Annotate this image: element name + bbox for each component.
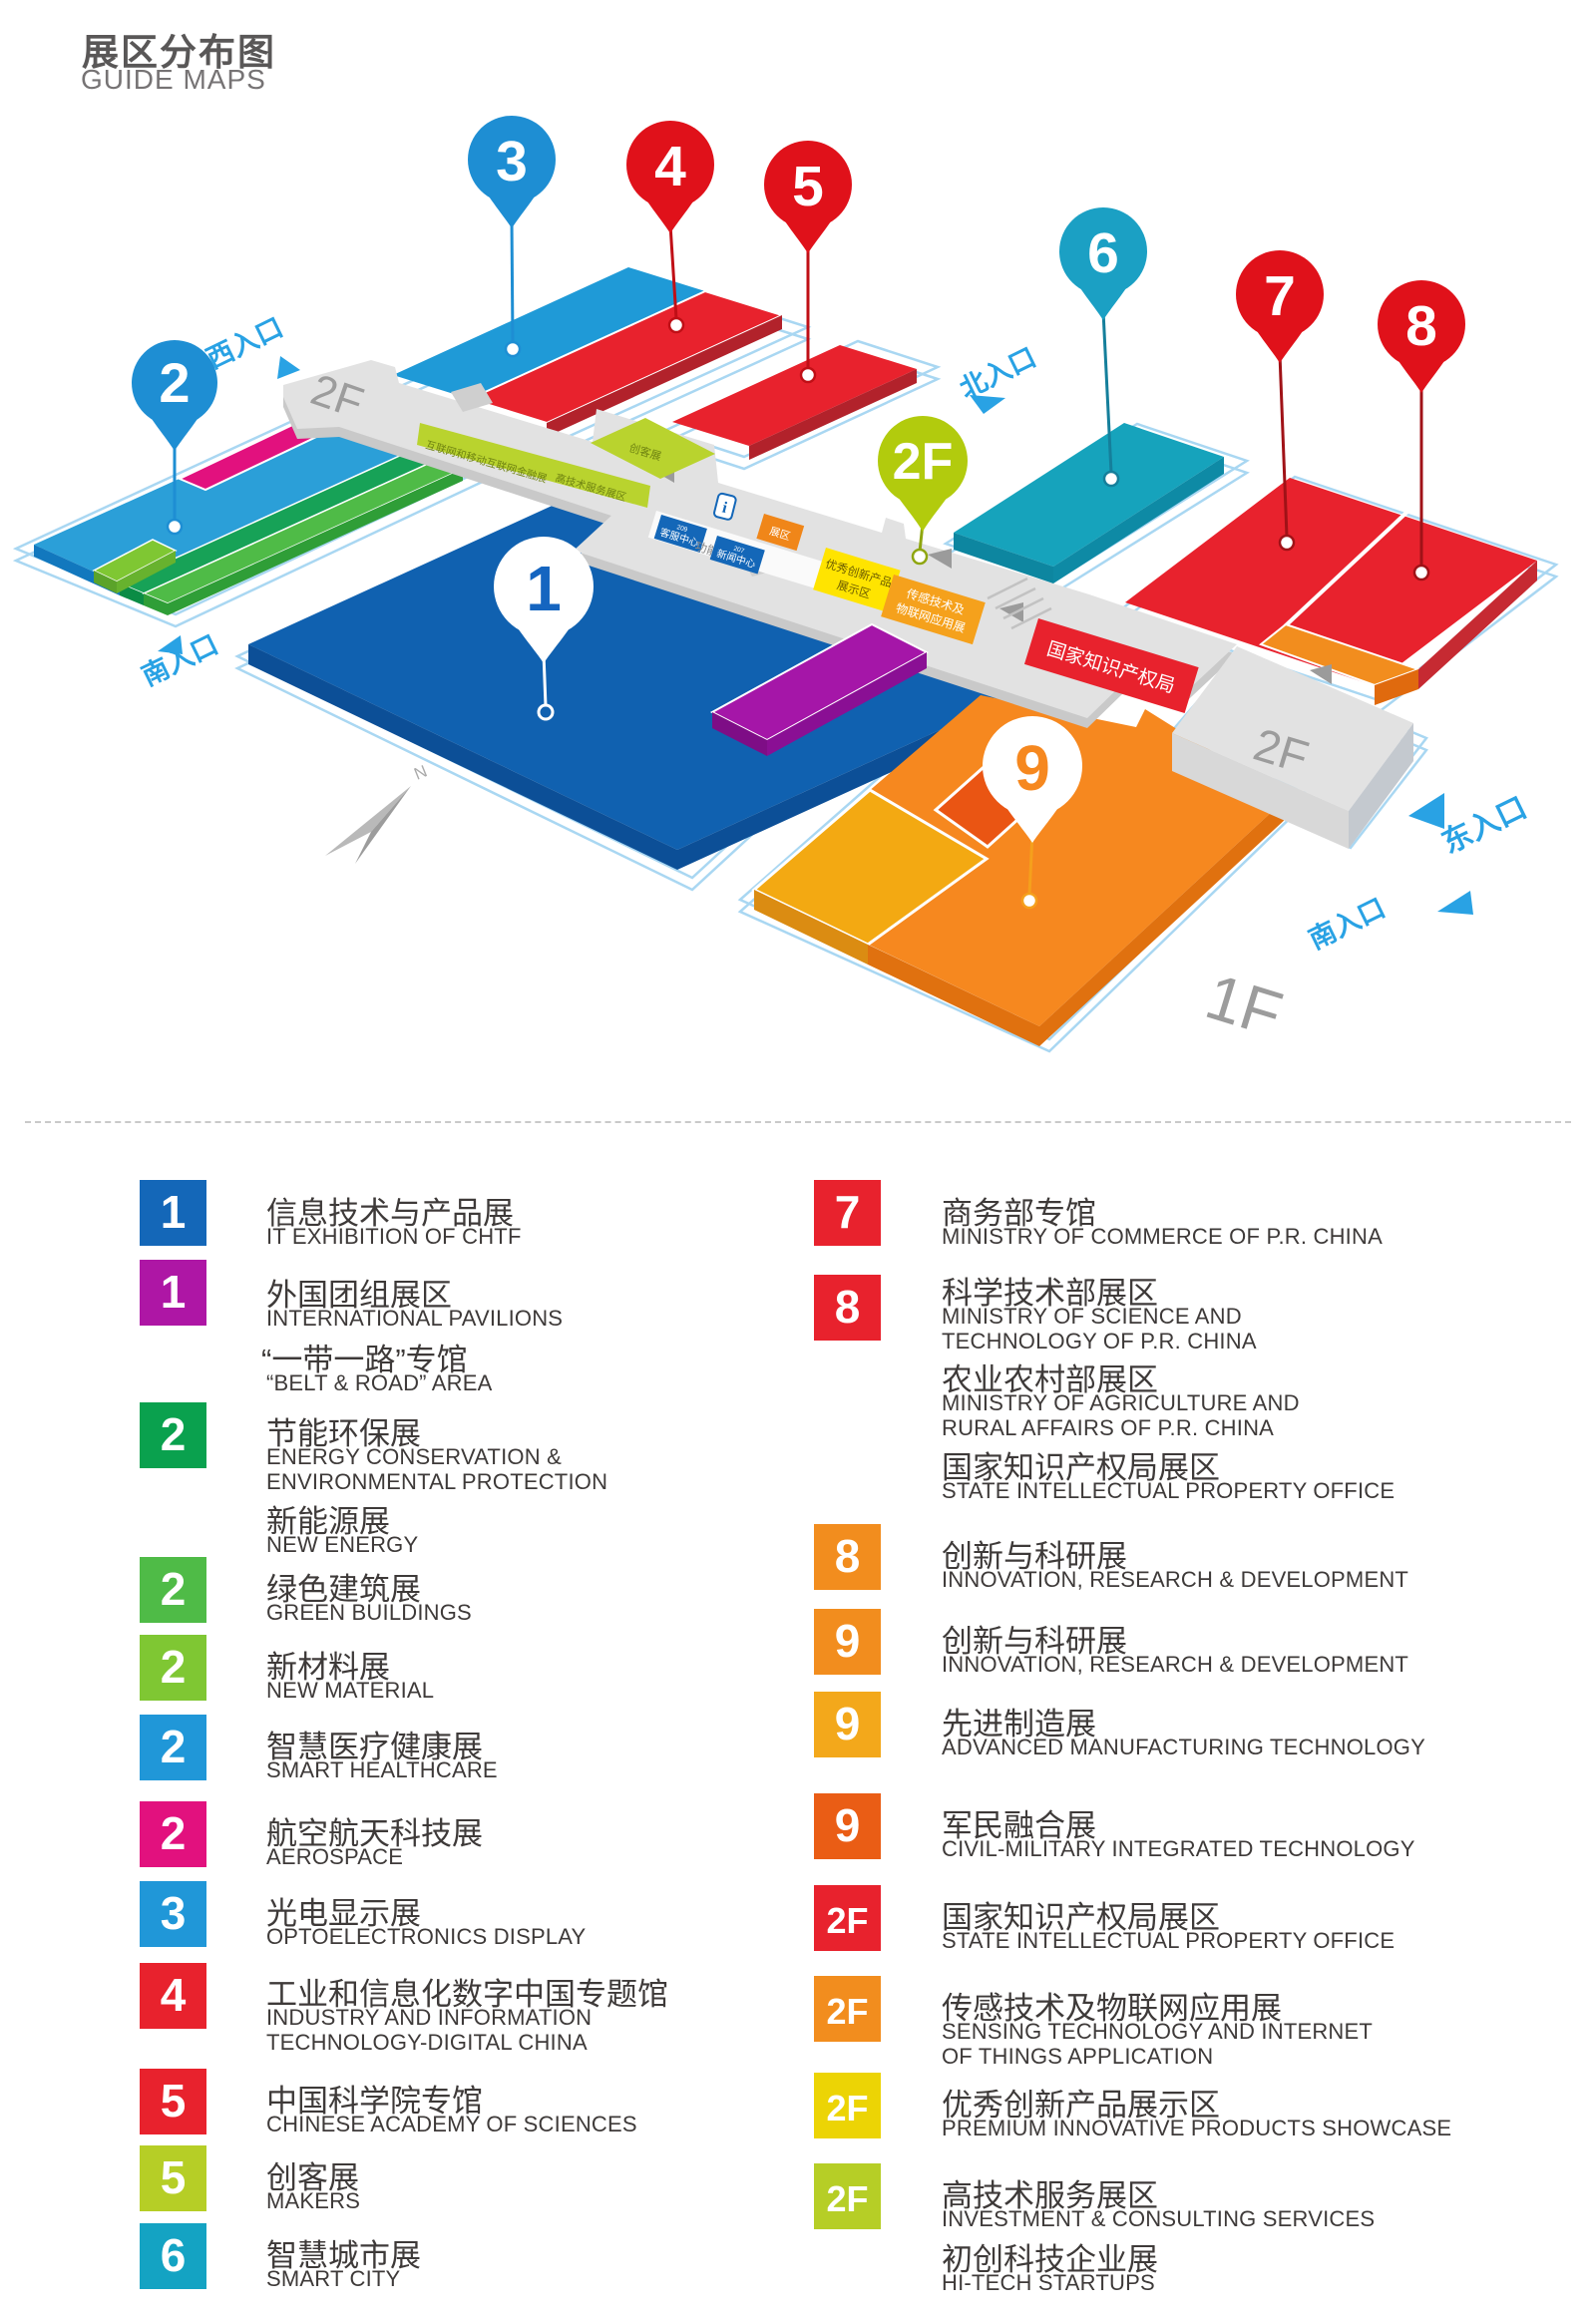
svg-text:1F: 1F — [1198, 961, 1290, 1051]
svg-text:3: 3 — [496, 130, 528, 194]
svg-text:7: 7 — [1264, 264, 1296, 328]
svg-text:1: 1 — [526, 553, 562, 624]
svg-text:5: 5 — [792, 155, 824, 218]
svg-text:2F: 2F — [893, 433, 954, 491]
svg-text:南入口: 南入口 — [1304, 893, 1390, 955]
svg-text:9: 9 — [1014, 732, 1050, 804]
svg-text:西入口: 西入口 — [201, 312, 287, 374]
svg-text:东入口: 东入口 — [1436, 790, 1532, 860]
svg-text:6: 6 — [1087, 221, 1119, 285]
svg-text:N: N — [411, 761, 430, 783]
svg-text:2: 2 — [159, 351, 190, 414]
svg-text:4: 4 — [654, 135, 686, 198]
svg-text:北入口: 北入口 — [955, 342, 1040, 404]
svg-text:8: 8 — [1405, 294, 1437, 358]
